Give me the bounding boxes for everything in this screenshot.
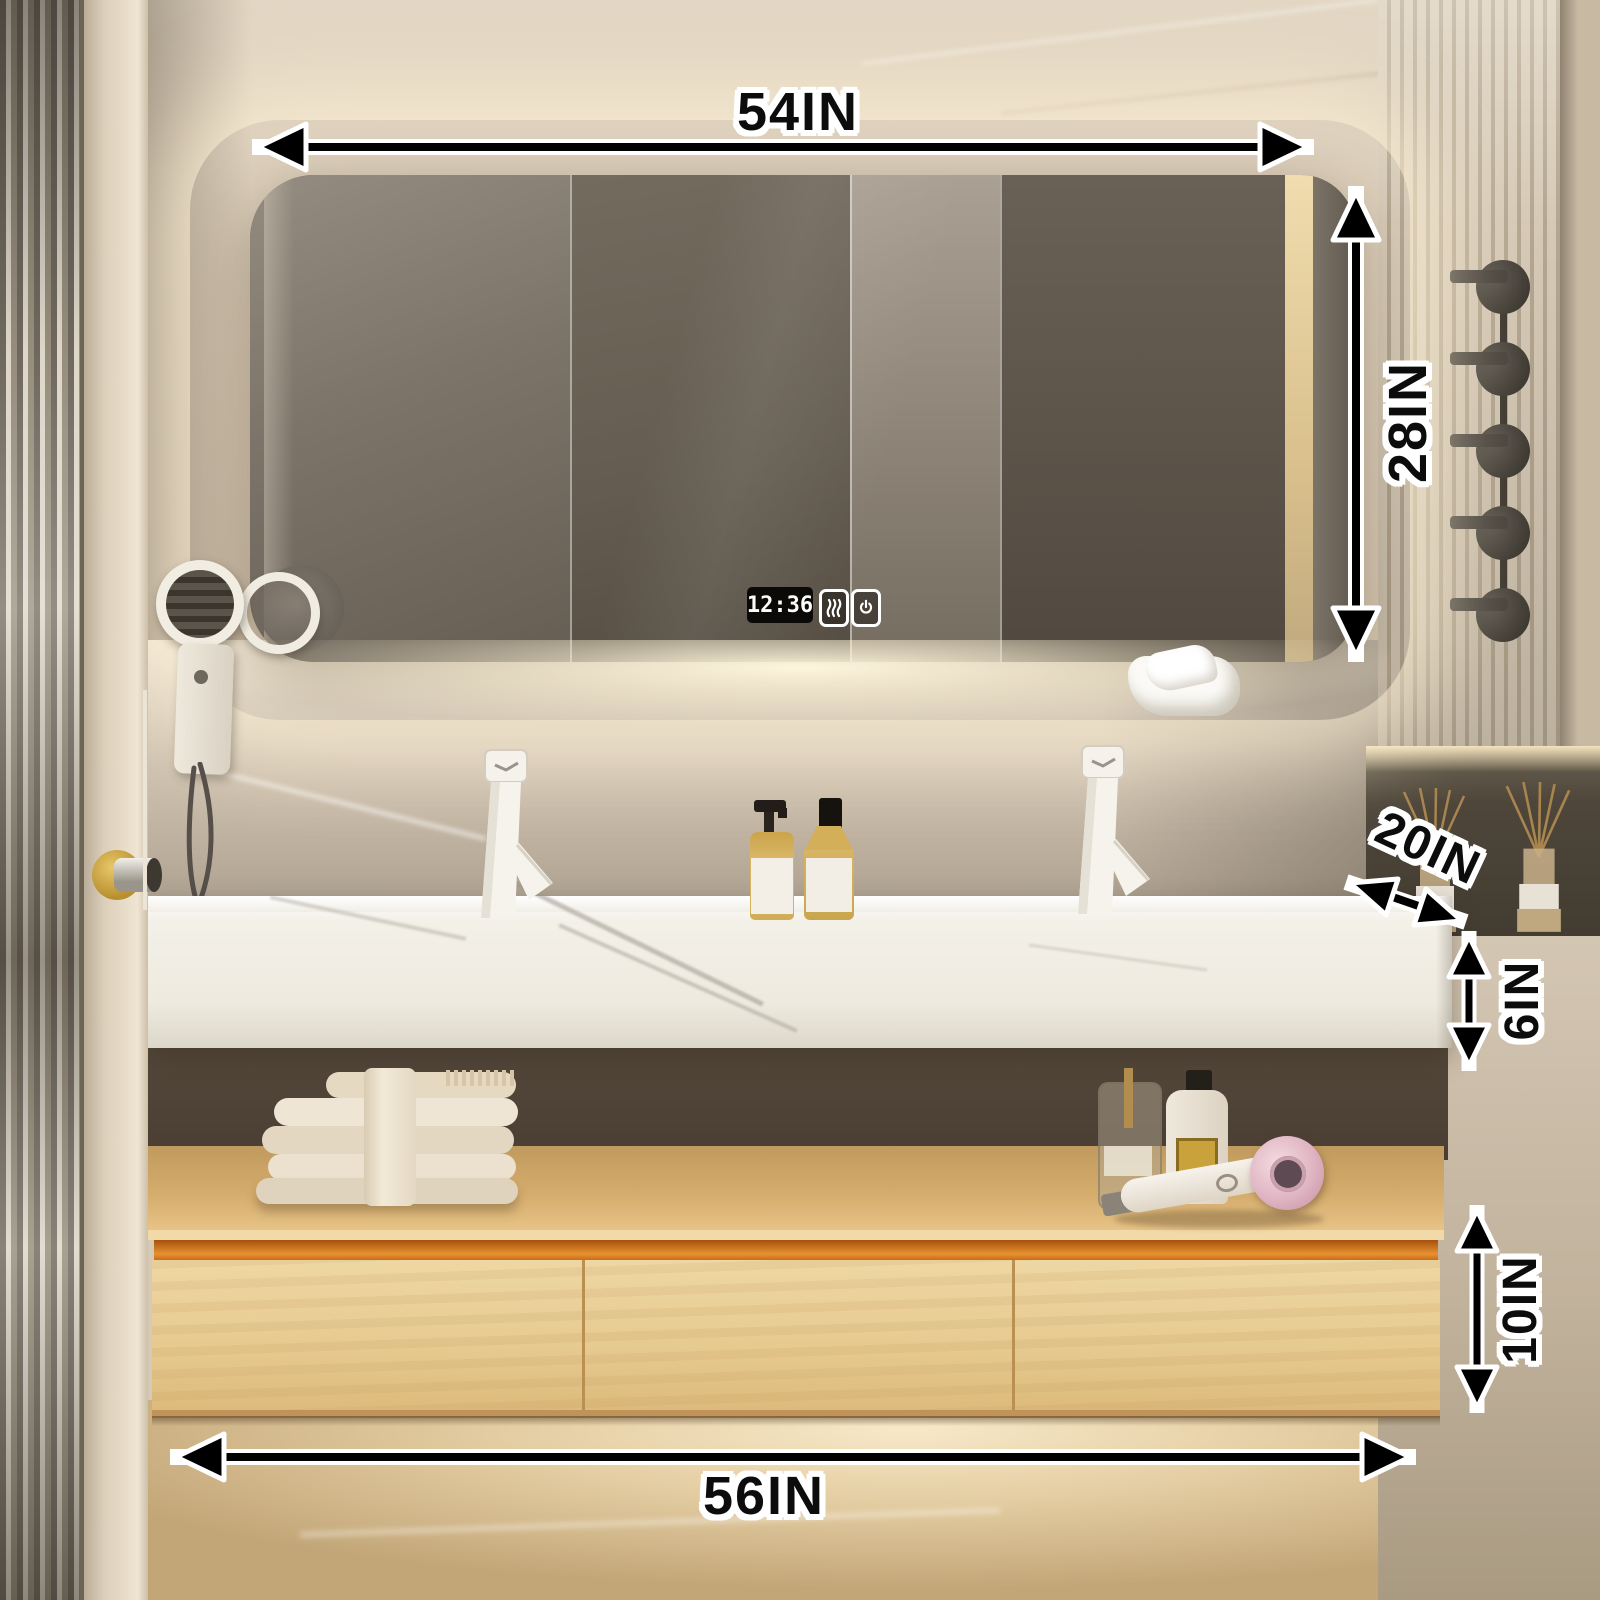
faucet-right[interactable] — [1052, 742, 1156, 918]
wood-grain — [152, 1260, 1440, 1412]
label-cabinet-height: 10IN — [1497, 1254, 1545, 1363]
fluted-glass-shade — [0, 0, 80, 1600]
dryer-cord — [170, 762, 240, 912]
hook-bar — [1450, 598, 1508, 611]
cap-bottle — [804, 770, 856, 920]
bathroom-photo: 12:36 — [0, 0, 1600, 1600]
led-recess — [154, 1240, 1438, 1260]
label-mirror-width: 54IN — [737, 85, 859, 139]
hook-disc — [1476, 342, 1530, 396]
hook-disc — [1476, 506, 1530, 560]
handle-cap — [146, 858, 162, 892]
bottle-label — [751, 858, 793, 914]
hook-bar — [1450, 516, 1508, 529]
drawer-seam — [582, 1260, 585, 1412]
towel-strap — [364, 1068, 416, 1206]
niche-light — [1366, 746, 1600, 772]
bottle-cap — [819, 798, 842, 830]
pump-bottle — [750, 778, 796, 920]
door-frame-seam — [80, 0, 84, 1600]
pump-nozzle — [778, 808, 787, 818]
defog-icon[interactable] — [819, 589, 849, 627]
bottle-shoulder — [804, 826, 854, 852]
hook-rack — [1440, 250, 1560, 650]
bottle-label — [806, 858, 852, 912]
hand-towel — [1128, 648, 1240, 724]
dryer-grille — [166, 570, 234, 638]
left-door — [0, 0, 148, 1600]
hook-bar — [1450, 352, 1508, 365]
drawer-seam — [1012, 1260, 1015, 1412]
glass-bottle-stick — [1124, 1068, 1133, 1128]
hose-line — [143, 690, 147, 910]
dryer-shadow — [1114, 1210, 1324, 1228]
hook-disc — [1476, 260, 1530, 314]
clock-time: 12:36 — [747, 593, 813, 618]
counter-vein — [1029, 943, 1208, 971]
counter-top-edge — [148, 896, 1452, 912]
counter-right-face — [1436, 896, 1452, 1048]
hook-disc — [1476, 588, 1530, 642]
dryer-ring-hole — [1270, 1156, 1306, 1192]
reed-diffuser — [1494, 782, 1584, 936]
label-mirror-height: 28IN — [1381, 361, 1435, 483]
pump-stem — [764, 812, 774, 834]
shelf-hair-dryer — [1094, 1128, 1344, 1238]
faucet-left[interactable] — [455, 748, 559, 920]
label-vanity-width: 56IN — [703, 1469, 825, 1523]
dryer-handle — [174, 643, 235, 775]
counter-vein — [558, 923, 797, 1032]
hook-disc — [1476, 424, 1530, 478]
wall-hair-dryer — [150, 552, 310, 912]
towel-stack — [256, 1068, 528, 1210]
label-counter-thickness: 6IN — [1499, 960, 1547, 1041]
hook-bar — [1450, 270, 1508, 283]
cabinet-under-shadow — [152, 1416, 1440, 1426]
door-frame — [80, 0, 148, 1600]
hook-bar — [1450, 434, 1508, 447]
mirror-clock: 12:36 — [747, 587, 813, 623]
dryer-button — [194, 670, 208, 684]
door-handle[interactable] — [92, 846, 166, 904]
countertop — [148, 896, 1452, 1048]
power-icon[interactable] — [851, 589, 881, 627]
towel-fringe — [446, 1070, 518, 1086]
